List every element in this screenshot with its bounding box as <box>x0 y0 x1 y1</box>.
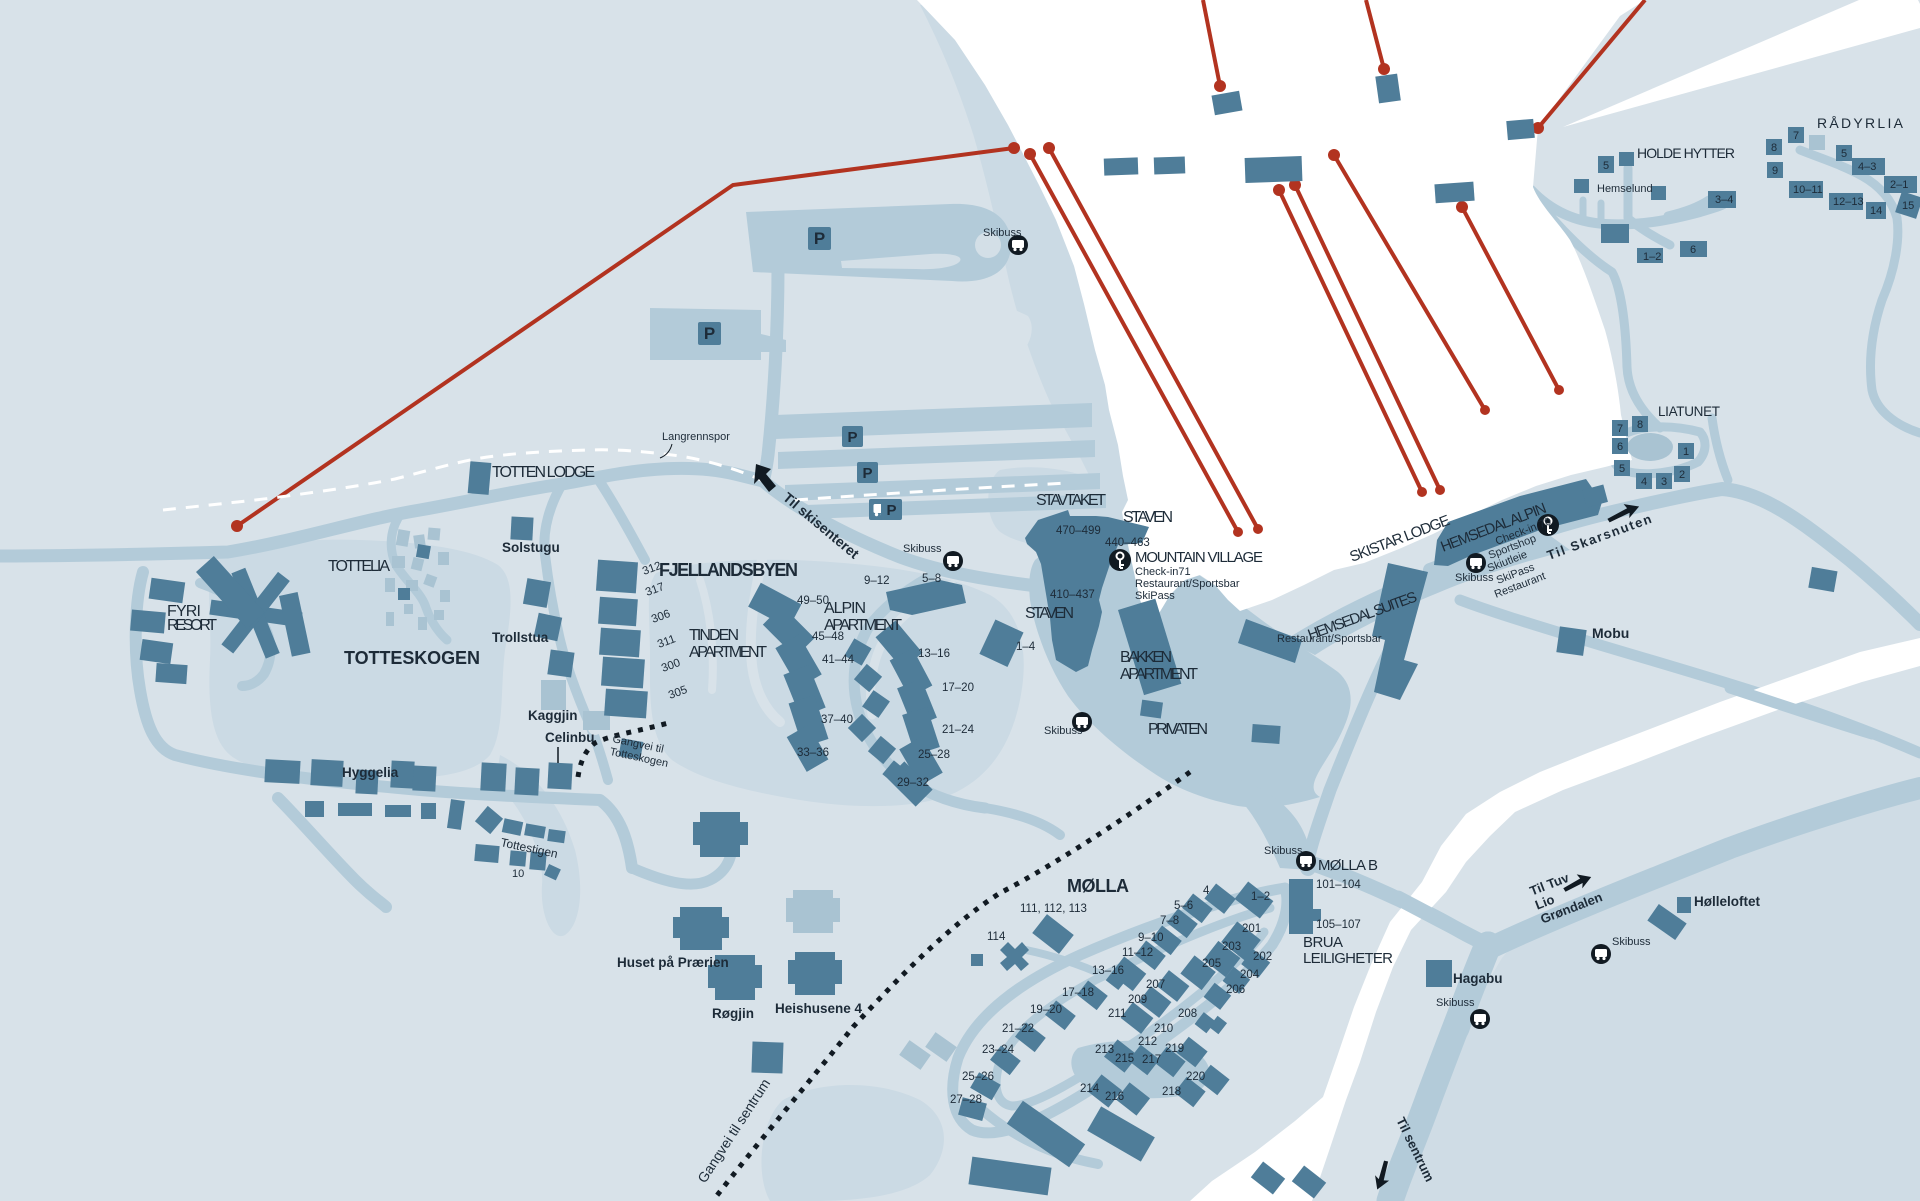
svg-text:Skibuss: Skibuss <box>903 543 942 555</box>
svg-text:6: 6 <box>1617 441 1623 453</box>
svg-text:17–20: 17–20 <box>942 682 974 694</box>
svg-text:9–10: 9–10 <box>1138 932 1164 944</box>
svg-text:17–18: 17–18 <box>1062 987 1094 999</box>
svg-text:114: 114 <box>987 931 1006 943</box>
svg-text:TINDEN: TINDEN <box>689 627 739 644</box>
svg-text:MØLLA B: MØLLA B <box>1318 857 1378 874</box>
svg-text:5: 5 <box>1841 148 1847 160</box>
svg-text:Heishusene 4: Heishusene 4 <box>775 1001 863 1016</box>
svg-text:1–2: 1–2 <box>1251 891 1270 903</box>
svg-text:5–8: 5–8 <box>922 573 941 585</box>
svg-text:RESORT: RESORT <box>167 617 217 634</box>
svg-text:15: 15 <box>1902 200 1914 212</box>
svg-text:27–28: 27–28 <box>950 1094 982 1106</box>
svg-text:1–4: 1–4 <box>1016 641 1036 653</box>
svg-text:8: 8 <box>1637 419 1643 431</box>
svg-text:10–11: 10–11 <box>1793 184 1823 196</box>
svg-text:29–32: 29–32 <box>897 777 929 789</box>
svg-text:RÅDYRLIA: RÅDYRLIA <box>1817 115 1904 131</box>
svg-text:216: 216 <box>1105 1091 1124 1103</box>
svg-text:10: 10 <box>512 868 524 880</box>
svg-text:201: 201 <box>1242 923 1261 935</box>
svg-text:Restaurant/Sportsbar: Restaurant/Sportsbar <box>1135 578 1240 590</box>
svg-text:41–44: 41–44 <box>822 654 855 666</box>
svg-text:Skibuss: Skibuss <box>1436 997 1475 1009</box>
svg-text:202: 202 <box>1253 951 1272 963</box>
svg-text:21–24: 21–24 <box>942 724 975 736</box>
svg-text:LIATUNET: LIATUNET <box>1658 404 1720 419</box>
svg-text:Skibuss: Skibuss <box>1264 845 1303 857</box>
svg-text:5: 5 <box>1603 160 1609 172</box>
svg-text:37–40: 37–40 <box>821 714 853 726</box>
svg-text:25–26: 25–26 <box>962 1071 994 1083</box>
svg-text:Trollstua: Trollstua <box>492 630 549 645</box>
svg-text:219: 219 <box>1165 1043 1184 1055</box>
svg-text:Skibuss: Skibuss <box>1612 936 1651 948</box>
svg-text:101–104: 101–104 <box>1316 879 1361 891</box>
svg-text:TOTTEN LODGE: TOTTEN LODGE <box>492 464 595 481</box>
svg-text:STAVEN: STAVEN <box>1123 509 1173 526</box>
svg-text:209: 209 <box>1128 994 1147 1006</box>
svg-text:4: 4 <box>1641 476 1647 488</box>
svg-text:13–16: 13–16 <box>1092 965 1124 977</box>
svg-text:SkiPass: SkiPass <box>1135 590 1175 602</box>
svg-text:ALPIN: ALPIN <box>824 600 866 617</box>
svg-text:8: 8 <box>1771 142 1777 154</box>
svg-text:HOLDE HYTTER: HOLDE HYTTER <box>1637 145 1735 161</box>
svg-text:Skibuss: Skibuss <box>1455 572 1494 584</box>
svg-text:12–13: 12–13 <box>1833 196 1864 208</box>
svg-text:210: 210 <box>1154 1023 1173 1035</box>
svg-text:217: 217 <box>1142 1054 1161 1066</box>
svg-text:13–16: 13–16 <box>918 648 950 660</box>
svg-text:Restaurant/Sportsbar: Restaurant/Sportsbar <box>1277 633 1382 645</box>
svg-text:7–8: 7–8 <box>1160 915 1179 927</box>
svg-text:Mobu: Mobu <box>1592 625 1629 641</box>
svg-text:9–12: 9–12 <box>864 575 890 587</box>
svg-text:9: 9 <box>1772 165 1778 177</box>
svg-text:206: 206 <box>1226 984 1245 996</box>
svg-text:205: 205 <box>1202 958 1221 970</box>
svg-text:45–48: 45–48 <box>812 631 844 643</box>
svg-text:215: 215 <box>1115 1053 1134 1065</box>
svg-text:STAVEN: STAVEN <box>1025 605 1074 622</box>
svg-text:Langrennspor: Langrennspor <box>662 431 730 443</box>
svg-text:5–6: 5–6 <box>1174 900 1193 912</box>
svg-text:PRIVATEN: PRIVATEN <box>1148 721 1208 738</box>
svg-text:FJELLANDSBYEN: FJELLANDSBYEN <box>659 560 798 580</box>
svg-text:410–437: 410–437 <box>1050 589 1095 601</box>
svg-text:4: 4 <box>1203 885 1210 897</box>
svg-text:Solstugu: Solstugu <box>502 540 560 555</box>
svg-text:6: 6 <box>1690 244 1696 256</box>
svg-text:P: P <box>886 502 896 519</box>
svg-text:1: 1 <box>1683 446 1689 458</box>
svg-text:7: 7 <box>1793 130 1799 142</box>
svg-text:33–36: 33–36 <box>797 747 829 759</box>
svg-text:P: P <box>847 429 857 446</box>
svg-text:MØLLA: MØLLA <box>1067 876 1129 896</box>
svg-text:105–107: 105–107 <box>1316 919 1361 931</box>
svg-text:3–4: 3–4 <box>1715 194 1733 206</box>
svg-text:Skibuss: Skibuss <box>1044 725 1083 737</box>
svg-text:STAVTAKET: STAVTAKET <box>1036 492 1106 509</box>
svg-text:2–1: 2–1 <box>1890 179 1908 191</box>
svg-text:208: 208 <box>1178 1008 1197 1020</box>
svg-text:207: 207 <box>1146 979 1165 991</box>
svg-text:APARTMENT: APARTMENT <box>1120 666 1198 683</box>
svg-text:3: 3 <box>1661 476 1667 488</box>
svg-text:P: P <box>704 324 715 343</box>
svg-text:Røgjin: Røgjin <box>712 1006 754 1021</box>
svg-text:5: 5 <box>1619 463 1625 475</box>
svg-text:Kaggjin: Kaggjin <box>528 708 578 723</box>
svg-text:P: P <box>814 229 825 248</box>
svg-text:211: 211 <box>1108 1008 1126 1020</box>
svg-text:Hemselund: Hemselund <box>1597 183 1653 195</box>
svg-text:LEILIGHETER: LEILIGHETER <box>1303 950 1393 967</box>
svg-text:23–24: 23–24 <box>982 1044 1015 1056</box>
svg-text:1–2: 1–2 <box>1643 251 1661 263</box>
svg-text:440–463: 440–463 <box>1105 537 1150 549</box>
svg-text:2: 2 <box>1679 469 1685 481</box>
svg-text:204: 204 <box>1240 969 1260 981</box>
svg-text:218: 218 <box>1162 1086 1181 1098</box>
svg-text:BRUA: BRUA <box>1303 934 1343 951</box>
svg-text:470–499: 470–499 <box>1056 525 1101 537</box>
svg-text:213: 213 <box>1095 1044 1114 1056</box>
svg-text:TOTTESKOGEN: TOTTESKOGEN <box>344 648 480 668</box>
svg-text:49–50: 49–50 <box>797 595 829 607</box>
svg-text:MOUNTAIN VILLAGE: MOUNTAIN VILLAGE <box>1135 549 1263 566</box>
svg-text:Hølleloftet: Hølleloftet <box>1694 894 1761 909</box>
svg-text:P: P <box>862 465 872 482</box>
svg-text:14: 14 <box>1870 205 1882 217</box>
svg-text:214: 214 <box>1080 1083 1100 1095</box>
svg-text:Check-in71: Check-in71 <box>1135 566 1191 578</box>
svg-text:Hagabu: Hagabu <box>1453 971 1503 986</box>
svg-text:212: 212 <box>1138 1036 1157 1048</box>
svg-text:4–3: 4–3 <box>1858 161 1876 173</box>
svg-text:220: 220 <box>1186 1071 1205 1083</box>
svg-text:25–28: 25–28 <box>918 749 950 761</box>
svg-text:BAKKEN: BAKKEN <box>1120 649 1172 666</box>
svg-text:11–12: 11–12 <box>1122 947 1153 959</box>
svg-text:21–22: 21–22 <box>1002 1023 1034 1035</box>
svg-text:Celinbu: Celinbu <box>545 730 595 745</box>
svg-text:19–20: 19–20 <box>1030 1004 1062 1016</box>
svg-text:APARTMENT: APARTMENT <box>689 644 767 661</box>
svg-text:Hyggelia: Hyggelia <box>342 765 399 780</box>
svg-text:7: 7 <box>1617 423 1623 435</box>
svg-text:111, 112, 113: 111, 112, 113 <box>1020 903 1087 915</box>
svg-text:Skibuss: Skibuss <box>983 227 1022 239</box>
svg-text:Huset på Prærien: Huset på Prærien <box>617 955 729 970</box>
svg-text:203: 203 <box>1222 941 1241 953</box>
svg-text:TOTTELIA: TOTTELIA <box>328 558 390 575</box>
